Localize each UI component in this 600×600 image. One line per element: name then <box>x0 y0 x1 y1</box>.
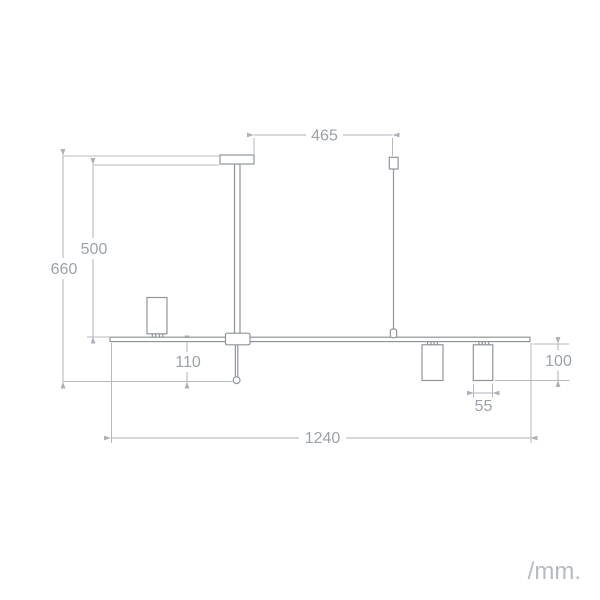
dim-55-label: 55 <box>475 398 493 415</box>
lamp-fixture <box>110 155 530 384</box>
dim-660-label: 660 <box>51 261 78 278</box>
dim-660-overall-drop: 660 <box>51 156 233 382</box>
unit-label: /mm. <box>528 558 581 585</box>
dimension-drawing: 465 660 500 110 <box>0 0 600 600</box>
dim-100-label: 100 <box>545 353 572 370</box>
downward-spotlight-1 <box>422 345 443 381</box>
downward-spotlight-2 <box>473 345 493 381</box>
dim-465-label: 465 <box>311 128 338 145</box>
dim-500-label: 500 <box>81 241 108 258</box>
dim-110-label: 110 <box>175 354 201 371</box>
dim-465-canopy-to-cable: 465 <box>254 128 393 157</box>
cable-ceiling-mount <box>389 157 398 169</box>
ceiling-canopy <box>220 155 254 164</box>
dim-110-stem-below-bar: 110 <box>175 343 201 382</box>
upward-spotlight <box>147 298 167 334</box>
dim-100-spotlight-height: 100 <box>495 344 572 381</box>
cable-bar-grip <box>390 329 396 338</box>
lower-stem <box>235 345 237 378</box>
rod-bar-connector <box>226 333 251 345</box>
dim-1240-label: 1240 <box>305 430 341 447</box>
light-bar <box>110 337 530 341</box>
dim-1240-bar-length: 1240 <box>111 343 531 447</box>
pendant-lamp-technical-drawing: 465 660 500 110 <box>0 0 600 600</box>
stem-end-cap <box>233 377 240 384</box>
dim-55-spotlight-diameter: 55 <box>474 384 493 416</box>
suspension-rod <box>235 164 241 334</box>
